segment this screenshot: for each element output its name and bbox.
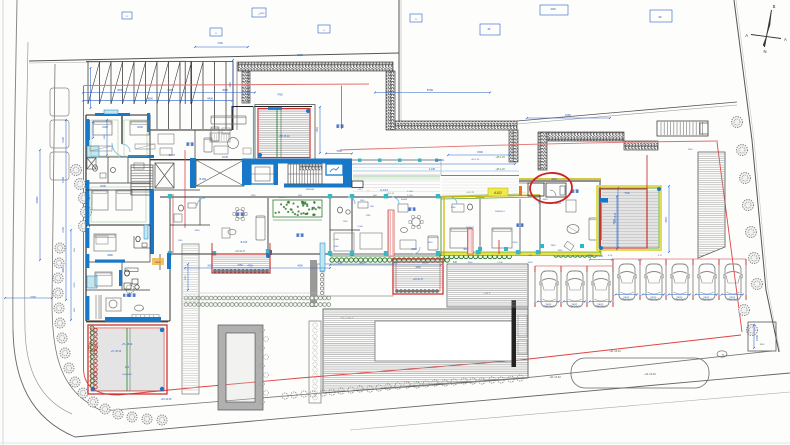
svg-text:+45.1.20: +45.1.20 xyxy=(495,168,505,171)
svg-text:4750: 4750 xyxy=(74,282,76,288)
svg-text:3080: 3080 xyxy=(107,254,113,257)
svg-text:+TL 45.10: +TL 45.10 xyxy=(122,343,133,346)
svg-text:2400: 2400 xyxy=(571,303,577,307)
svg-text:1150: 1150 xyxy=(366,215,371,217)
svg-text:+45.1: +45.1 xyxy=(357,189,363,191)
svg-text:B10403-1: B10403-1 xyxy=(495,211,505,213)
svg-text:2000: 2000 xyxy=(468,262,474,264)
svg-text:≈≈≈: ≈≈≈ xyxy=(522,191,527,194)
svg-text:RES: RES xyxy=(760,344,765,346)
svg-text:1150: 1150 xyxy=(343,221,348,223)
svg-text:2150: 2150 xyxy=(755,334,759,341)
svg-text:1753: 1753 xyxy=(229,82,232,88)
svg-text:4500: 4500 xyxy=(147,97,153,101)
svg-text:+45.1.20: +45.1.20 xyxy=(471,159,480,161)
svg-text:2400: 2400 xyxy=(597,303,603,307)
svg-text:B102: B102 xyxy=(155,262,161,264)
svg-text:1130: 1130 xyxy=(451,207,456,209)
svg-text:1700: 1700 xyxy=(217,42,223,45)
svg-text:40305: 40305 xyxy=(401,199,408,201)
svg-text:B-901: B-901 xyxy=(200,177,207,181)
svg-text:+45.10: +45.10 xyxy=(279,197,286,199)
svg-text:7500: 7500 xyxy=(624,192,630,195)
svg-text:4030500: 4030500 xyxy=(306,189,315,191)
svg-text:2100: 2100 xyxy=(62,227,65,233)
svg-text:7020: 7020 xyxy=(665,217,668,223)
svg-text:N: N xyxy=(763,49,766,54)
svg-text:2800: 2800 xyxy=(411,248,417,251)
svg-text:2000: 2000 xyxy=(422,262,428,265)
svg-text:2000: 2000 xyxy=(528,262,534,264)
svg-text:3600: 3600 xyxy=(543,199,549,201)
svg-text:1130: 1130 xyxy=(104,134,106,139)
svg-text:+45.1.29: +45.1.29 xyxy=(495,156,505,159)
svg-text:4750: 4750 xyxy=(277,94,283,97)
svg-text:4500: 4500 xyxy=(222,88,228,92)
svg-text:B10030/2: B10030/2 xyxy=(122,374,132,376)
svg-text:4750: 4750 xyxy=(247,265,253,268)
svg-text:4500: 4500 xyxy=(117,88,123,92)
svg-text:4400: 4400 xyxy=(207,97,213,101)
svg-text:3130: 3130 xyxy=(102,125,108,129)
svg-text:2000: 2000 xyxy=(359,262,365,265)
svg-text:+45.1.29: +45.1.29 xyxy=(386,193,395,195)
svg-text:2400: 2400 xyxy=(703,296,709,300)
svg-text:▓▒▓: ▓▒▓ xyxy=(297,233,305,237)
svg-text:2100: 2100 xyxy=(62,137,65,143)
svg-text:2.000: 2.000 xyxy=(333,239,339,241)
svg-text:2400: 2400 xyxy=(676,296,682,300)
svg-text:+41.10.42: +41.10.42 xyxy=(609,349,621,353)
svg-text:1500: 1500 xyxy=(477,150,483,154)
svg-text:6750: 6750 xyxy=(565,113,571,117)
svg-text:810: 810 xyxy=(453,261,458,264)
svg-text:2700: 2700 xyxy=(30,296,36,299)
svg-text:2400: 2400 xyxy=(545,303,551,307)
svg-text:+TR 45.10: +TR 45.10 xyxy=(278,135,290,138)
svg-text:4.195: 4.195 xyxy=(429,168,436,171)
svg-text:2000: 2000 xyxy=(207,265,213,268)
svg-text:+41.5: +41.5 xyxy=(484,291,491,295)
svg-text:2060: 2060 xyxy=(334,246,340,248)
svg-text:A: A xyxy=(745,33,748,38)
svg-text:▓▒▓: ▓▒▓ xyxy=(129,293,137,297)
svg-text:1200: 1200 xyxy=(251,195,257,197)
svg-text:▓▒▓: ▓▒▓ xyxy=(237,212,245,216)
svg-text:2950: 2950 xyxy=(558,250,564,252)
svg-text:1600: 1600 xyxy=(550,8,556,11)
svg-text:1750: 1750 xyxy=(185,275,187,281)
svg-text:1:100: 1:100 xyxy=(497,262,503,264)
svg-text:+41.10.46: +41.10.46 xyxy=(644,372,656,376)
svg-text:▓▒▓: ▓▒▓ xyxy=(409,207,417,211)
svg-text:5.700: 5.700 xyxy=(62,176,65,183)
svg-text:2000: 2000 xyxy=(100,184,106,188)
svg-text:▓▒▓: ▓▒▓ xyxy=(187,142,195,146)
svg-text:2060: 2060 xyxy=(195,230,201,232)
svg-text:A: A xyxy=(784,37,787,42)
svg-text:wtwtwtwt: wtwtwtwt xyxy=(476,196,485,199)
svg-text:1300: 1300 xyxy=(260,13,266,15)
svg-text:+41.10.52: +41.10.52 xyxy=(549,375,561,379)
svg-text:+45.10.38: +45.10.38 xyxy=(161,398,172,401)
svg-text:16.90: 16.90 xyxy=(222,156,229,159)
svg-text:1150: 1150 xyxy=(360,200,365,202)
svg-text:2050: 2050 xyxy=(428,242,434,244)
svg-text:4750: 4750 xyxy=(237,264,243,267)
svg-text:1753: 1753 xyxy=(316,127,319,133)
svg-text:+45.1.29: +45.1.29 xyxy=(466,192,475,194)
svg-text:2400: 2400 xyxy=(729,296,735,300)
svg-text:A-101: A-101 xyxy=(380,188,388,192)
svg-text:4500: 4500 xyxy=(167,88,173,92)
svg-text:1130: 1130 xyxy=(178,240,183,242)
svg-text:▓▒▓: ▓▒▓ xyxy=(337,124,345,128)
svg-text:+41.5 DECK: +41.5 DECK xyxy=(340,317,354,320)
svg-text:2400: 2400 xyxy=(623,296,629,300)
svg-text:2000: 2000 xyxy=(513,242,519,244)
svg-text:7500: 7500 xyxy=(336,150,342,153)
svg-text:810: 810 xyxy=(338,262,343,265)
svg-text:2.000: 2.000 xyxy=(357,226,363,228)
svg-text:3600: 3600 xyxy=(551,178,557,181)
svg-text:+TL 45.20: +TL 45.20 xyxy=(111,351,122,353)
svg-text:B10403: B10403 xyxy=(466,227,474,229)
svg-text:+45.10.37: +45.10.37 xyxy=(413,279,424,281)
svg-text:4400: 4400 xyxy=(297,265,303,268)
svg-text:3080: 3080 xyxy=(62,267,65,273)
svg-text:3230: 3230 xyxy=(137,125,143,129)
svg-text:B-103: B-103 xyxy=(241,241,248,244)
svg-text:2400: 2400 xyxy=(650,296,656,300)
svg-text:8750: 8750 xyxy=(427,88,434,92)
svg-text:B1-07: B1-07 xyxy=(169,154,176,157)
svg-text:4400: 4400 xyxy=(415,266,421,269)
svg-text:▓▒▓: ▓▒▓ xyxy=(572,189,580,193)
svg-text:1:100: 1:100 xyxy=(392,262,399,265)
svg-text:7500: 7500 xyxy=(297,53,303,57)
svg-text:9480: 9480 xyxy=(588,255,594,257)
svg-text:1.100: 1.100 xyxy=(407,191,413,193)
svg-text:A73: A73 xyxy=(125,366,130,369)
svg-text:2950: 2950 xyxy=(551,245,557,247)
svg-text:41.095L: 41.095L xyxy=(436,159,445,162)
svg-text:1.100: 1.100 xyxy=(407,195,413,197)
svg-text:+45.10.37: +45.10.37 xyxy=(235,251,246,253)
svg-text:B: B xyxy=(773,4,776,9)
svg-text:7800: 7800 xyxy=(613,219,616,225)
svg-text:7500: 7500 xyxy=(688,149,694,151)
svg-text:30000: 30000 xyxy=(36,196,39,203)
svg-text:A102: A102 xyxy=(494,191,502,195)
svg-text:▓▒▓: ▓▒▓ xyxy=(517,223,525,227)
